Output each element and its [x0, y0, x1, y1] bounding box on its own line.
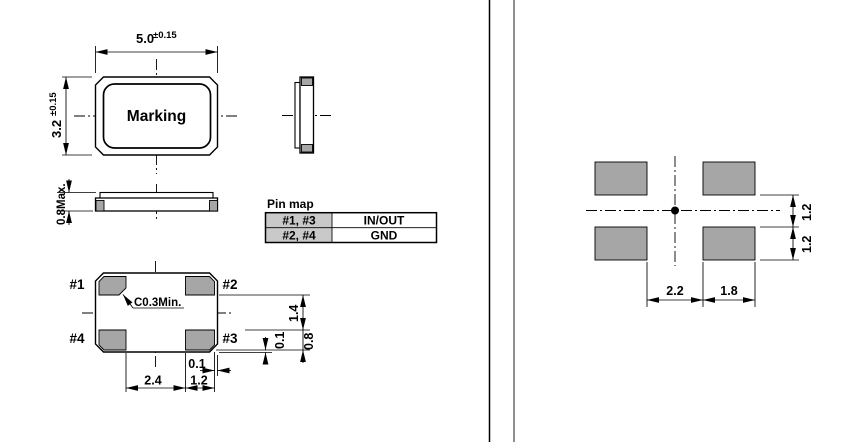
pin-map-signal-cell: GND — [371, 228, 398, 242]
dim-pad-height: 0.8 — [302, 333, 316, 350]
dim-height-value: 3.2 — [49, 120, 64, 138]
pad-1-label: #1 — [69, 277, 85, 292]
dim-edge-gap-x: 0.1 — [188, 357, 205, 371]
dim-pad-span: 2.4 — [144, 374, 161, 388]
dim-pad-height: 1.2 — [800, 236, 814, 253]
pad-1-shape — [99, 277, 126, 296]
pad-2-label: #2 — [222, 277, 237, 292]
pin-map: Pin map #1, #3 IN/OUT #2, #4 GND — [266, 197, 437, 243]
pad-3-shape — [186, 330, 215, 350]
bottom-view: #1 #2 #3 #4 C0.3Min. 2.4 1.2 0.1 — [69, 261, 316, 392]
pad-2-shape — [186, 277, 215, 296]
dim-pad-width: 1.8 — [720, 284, 737, 298]
drawing-canvas: Marking 5.0 ±0.15 3.2 ±0.15 — [0, 0, 849, 442]
land-pad-top-right — [703, 162, 755, 195]
dim-pad-width: 1.2 — [190, 374, 207, 388]
solder-pad — [302, 78, 313, 86]
pad-4-label: #4 — [69, 331, 85, 346]
pad-4-shape — [99, 330, 126, 350]
dimension-height: 3.2 ±0.15 — [48, 77, 92, 155]
solder-pad — [96, 201, 104, 212]
panel-divider — [490, 0, 515, 442]
technical-drawing: Marking 5.0 ±0.15 3.2 ±0.15 — [0, 0, 849, 442]
dim-width-value: 5.0 — [136, 31, 154, 46]
solder-pad — [210, 201, 218, 212]
land-pattern: 1.2 1.2 2.2 1.8 — [586, 156, 814, 307]
dim-width-tolerance: ±0.15 — [153, 30, 177, 41]
dim-gap-x: 2.2 — [666, 284, 683, 298]
pin-map-pins-cell: #1, #3 — [282, 214, 316, 228]
dimension-land-vertical: 1.2 1.2 — [760, 195, 814, 260]
center-origin-dot — [671, 207, 679, 215]
dim-edge-gap-y: 0.1 — [273, 332, 287, 349]
dimension-bottom-horizontal: 2.4 1.2 0.1 — [126, 352, 231, 392]
dimension-max-height: 0.8Max. — [56, 179, 96, 225]
dimension-bottom-vertical: 1.4 0.8 0.1 — [216, 295, 316, 364]
package-lid-edge — [295, 83, 300, 149]
package-body — [300, 77, 314, 153]
solder-pad — [302, 145, 313, 153]
dim-height-tolerance: ±0.15 — [48, 92, 59, 116]
pin-map-signal-cell: IN/OUT — [364, 214, 405, 228]
pin-map-pins-cell: #2, #4 — [282, 228, 316, 242]
land-pad-bottom-right — [703, 227, 755, 260]
top-view: Marking 5.0 ±0.15 3.2 ±0.15 — [48, 30, 240, 174]
front-view: 0.8Max. — [56, 179, 218, 225]
land-pad-top-left — [595, 162, 647, 195]
pin-map-title: Pin map — [267, 197, 314, 211]
land-pad-bottom-left — [595, 227, 647, 260]
chamfer-note: C0.3Min. — [134, 297, 181, 309]
pad-3-label: #3 — [222, 331, 238, 346]
side-view — [282, 77, 332, 153]
marking-label: Marking — [127, 108, 186, 125]
dimension-land-horizontal: 2.2 1.8 — [647, 262, 755, 307]
package-body — [96, 198, 218, 211]
dim-gap-y: 1.2 — [800, 204, 814, 221]
dim-pad-gap-y: 1.4 — [287, 305, 301, 322]
dim-max-height-value: 0.8Max. — [56, 183, 68, 225]
